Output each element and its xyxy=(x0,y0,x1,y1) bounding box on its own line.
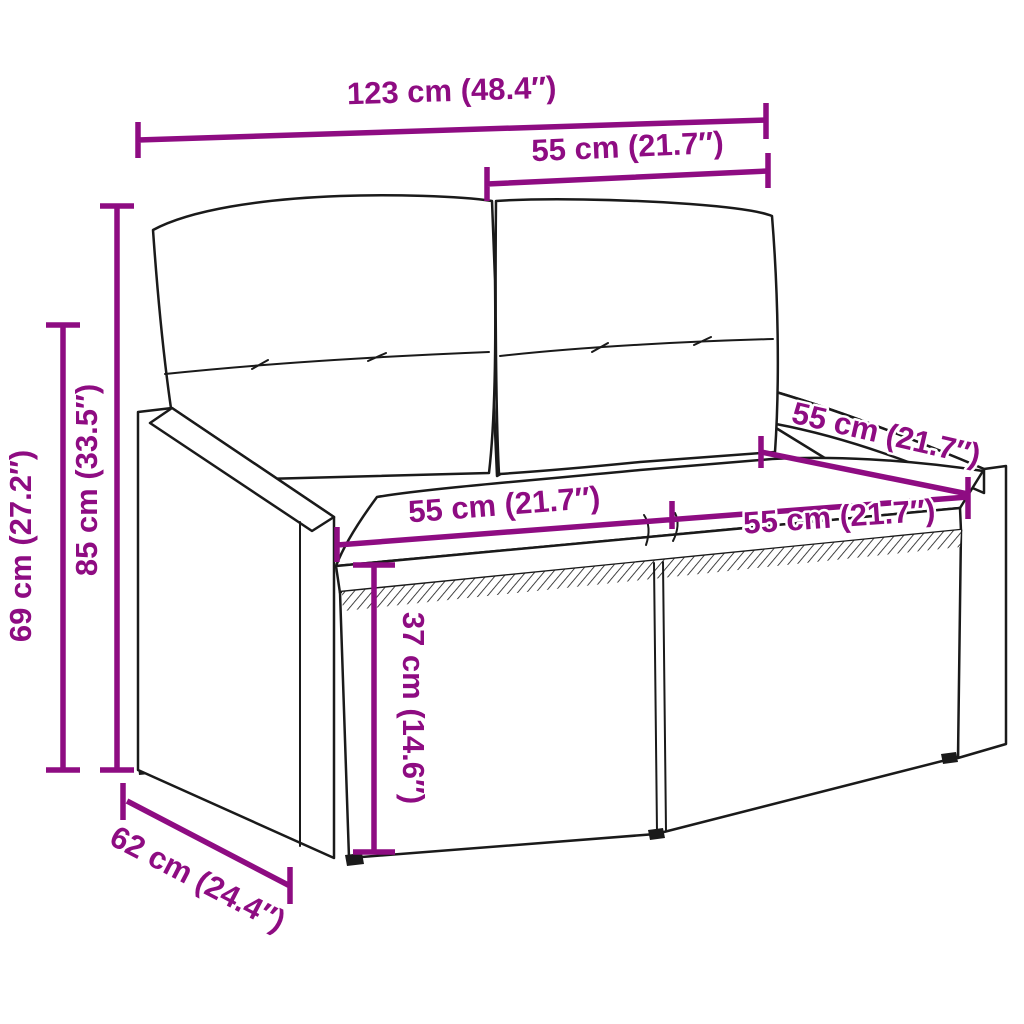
dimension-overall-width-label: 123 cm (48.4″) xyxy=(346,70,557,112)
dimension-backrest-width-label: 55 cm (21.7″) xyxy=(531,125,725,168)
dimension-diagram-page: 123 cm (48.4″) 55 cm (21.7″) 85 cm (33.5… xyxy=(0,0,1024,1024)
back-cushion-right xyxy=(496,199,778,474)
back-cushion-right-body xyxy=(496,199,778,474)
dimension-overall-height: 85 cm (33.5″) xyxy=(69,206,134,770)
dimension-overall-height-label: 85 cm (33.5″) xyxy=(69,384,104,576)
foot-front-right xyxy=(941,752,958,764)
dimension-backrest-width: 55 cm (21.7″) xyxy=(487,125,768,201)
dimension-overall-height-line xyxy=(100,206,134,770)
dimension-seat-height-label: 37 cm (14.6″) xyxy=(396,612,431,804)
dimension-armrest-height-label: 69 cm (27.2″) xyxy=(3,450,38,642)
foot-front-left xyxy=(345,853,364,866)
dimension-diagram: 123 cm (48.4″) 55 cm (21.7″) 85 cm (33.5… xyxy=(0,0,1024,1024)
foot-front-middle xyxy=(648,828,665,840)
